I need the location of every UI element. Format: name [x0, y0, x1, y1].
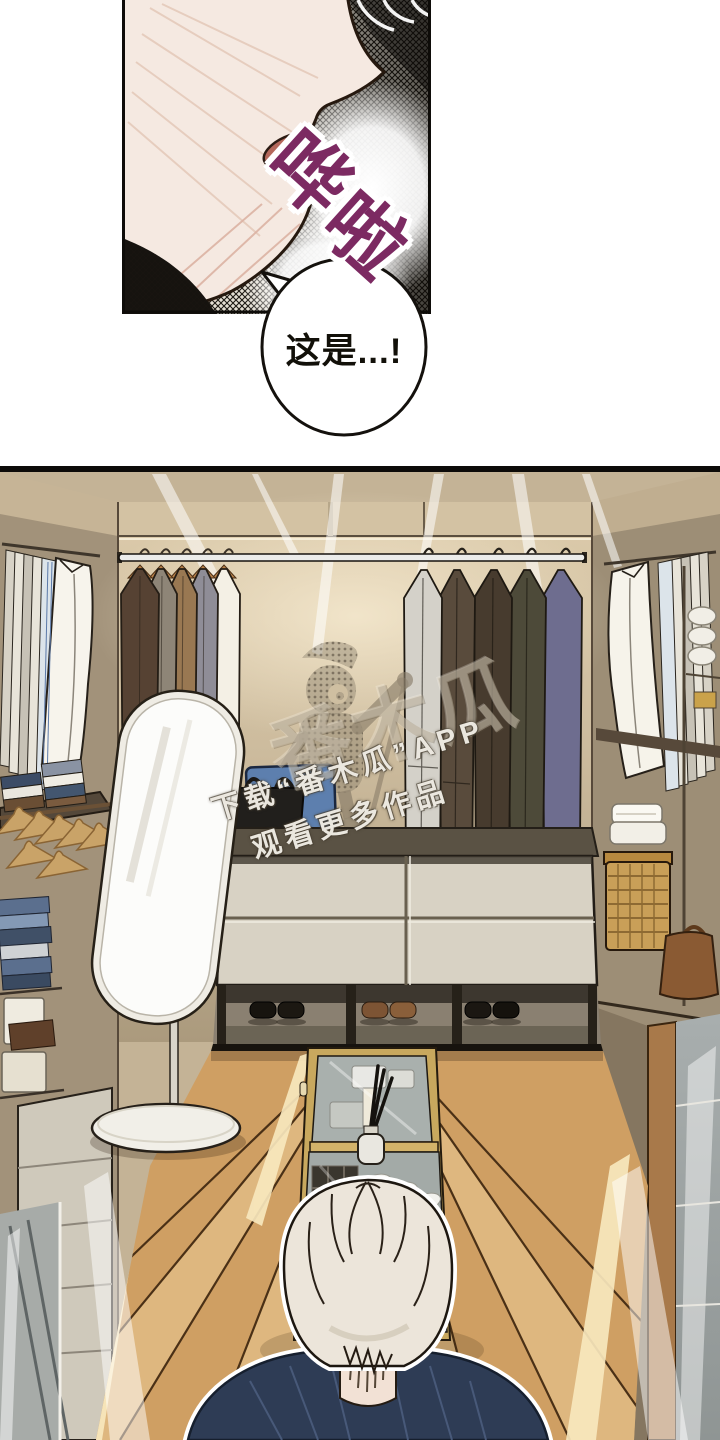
walk-in-closet-panel — [0, 466, 720, 1440]
panel-top-border — [0, 466, 720, 472]
island-handle — [300, 1082, 307, 1096]
speech-bubble-text: 这是...! — [262, 320, 426, 376]
shoes — [248, 1002, 521, 1026]
comic-page: 哗啦 这是...! — [0, 0, 720, 1440]
hanging-shirts-left — [0, 550, 93, 791]
denim-stacks — [0, 897, 55, 990]
towels-on-basket — [610, 804, 666, 844]
clothes-rod — [117, 552, 587, 563]
hanging-shirts-right — [608, 552, 715, 791]
wicker-basket — [604, 852, 672, 950]
mirror-base — [92, 1104, 240, 1152]
shoe-cubbies — [213, 985, 601, 1044]
leather-bag — [660, 927, 718, 999]
glass-corner-left — [0, 1202, 68, 1440]
